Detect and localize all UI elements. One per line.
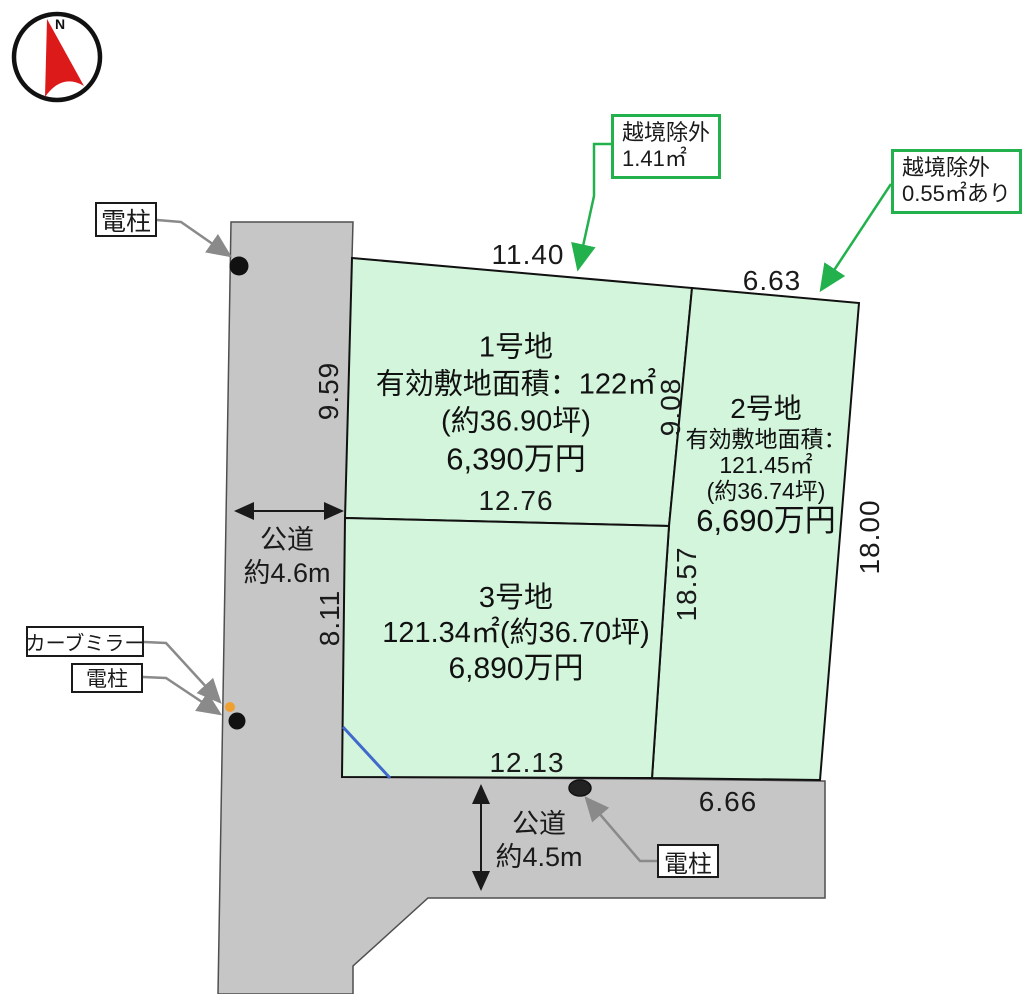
lot2-tsubo: (約36.74坪) [686,478,847,504]
lot2-name: 2号地 [686,392,847,426]
lot3-info: 3号地 121.34㎡(約36.70坪) 6,890万円 [382,581,650,687]
leader-encroachment-top [578,144,611,269]
dim-lot2-right: 18.00 [854,499,886,574]
lot1-name: 1号地 [376,330,656,367]
encroachment-top-callout: 越境除外 1.41㎡ [611,114,721,179]
pole-bottom-dot [569,780,591,796]
encroachment-right-line1: 越境除外 [902,155,1011,181]
dim-lot3-bottom: 12.13 [489,747,564,779]
road-south-width: 約4.5m [495,841,582,874]
leader-curve-mirror [144,642,220,702]
site-plan: N 電柱 カーブミラー 電柱 電柱 越境除外 1.41㎡ 越境除外 0.55㎡あ… [0,0,1024,994]
compass-north-label: N [55,16,65,32]
lot2-info: 2号地 有効敷地面積： 121.45㎡ (約36.74坪) 6,690万円 [686,392,847,538]
leader-encroachment-right [821,184,891,290]
lot2-area: 121.45㎡ [686,452,847,478]
curve-mirror-tag: カーブミラー [26,626,144,657]
lot1-info: 1号地 有効敷地面積：122㎡ (約36.90坪) 6,390万円 [376,330,656,479]
encroachment-top-line2: 1.41㎡ [622,146,710,172]
dim-lot1-bottom: 12.76 [478,485,553,517]
dim-lot3-right: 18.57 [671,546,703,621]
lot1-area: 有効敷地面積：122㎡ [376,367,656,404]
dim-lot1-left: 9.59 [313,362,345,421]
dim-lot1-top: 11.40 [492,239,565,271]
leader-pole-left [143,677,220,714]
encroachment-right-callout: 越境除外 0.55㎡あり [891,149,1022,214]
road-west-width: 約4.6m [243,557,330,590]
dim-lot2-bottom: 6.66 [699,786,758,818]
lot3-area: 121.34㎡(約36.70坪) [382,616,650,651]
pole-top-tag: 電柱 [95,202,157,237]
lot3-name: 3号地 [382,581,650,616]
encroachment-top-line1: 越境除外 [622,120,710,146]
lot2-price: 6,690万円 [686,504,847,538]
road-west-label: 公道 約4.6m [243,524,330,590]
leader-pole-top [157,220,230,256]
dim-lot1-right: 9.08 [655,378,687,437]
pole-top-dot [230,257,249,276]
encroachment-right-line2: 0.55㎡あり [902,181,1011,207]
lot3-price: 6,890万円 [382,651,650,687]
lot1-tsubo: (約36.90坪) [376,404,656,441]
lot1-price: 6,390万円 [376,441,656,479]
road-south-label: 公道 約4.5m [495,808,582,874]
pole-bottom-tag: 電柱 [657,844,719,878]
road-west-name: 公道 [243,524,330,557]
pole-left-tag: 電柱 [71,663,143,693]
curve-mirror-dot [225,702,235,712]
pole-left-dot [229,713,246,730]
dim-lot2-top: 6.63 [743,265,802,297]
road-south-name: 公道 [495,808,582,841]
lot2-area-label: 有効敷地面積： [686,426,847,452]
dim-lot3-left: 8.11 [314,590,346,646]
